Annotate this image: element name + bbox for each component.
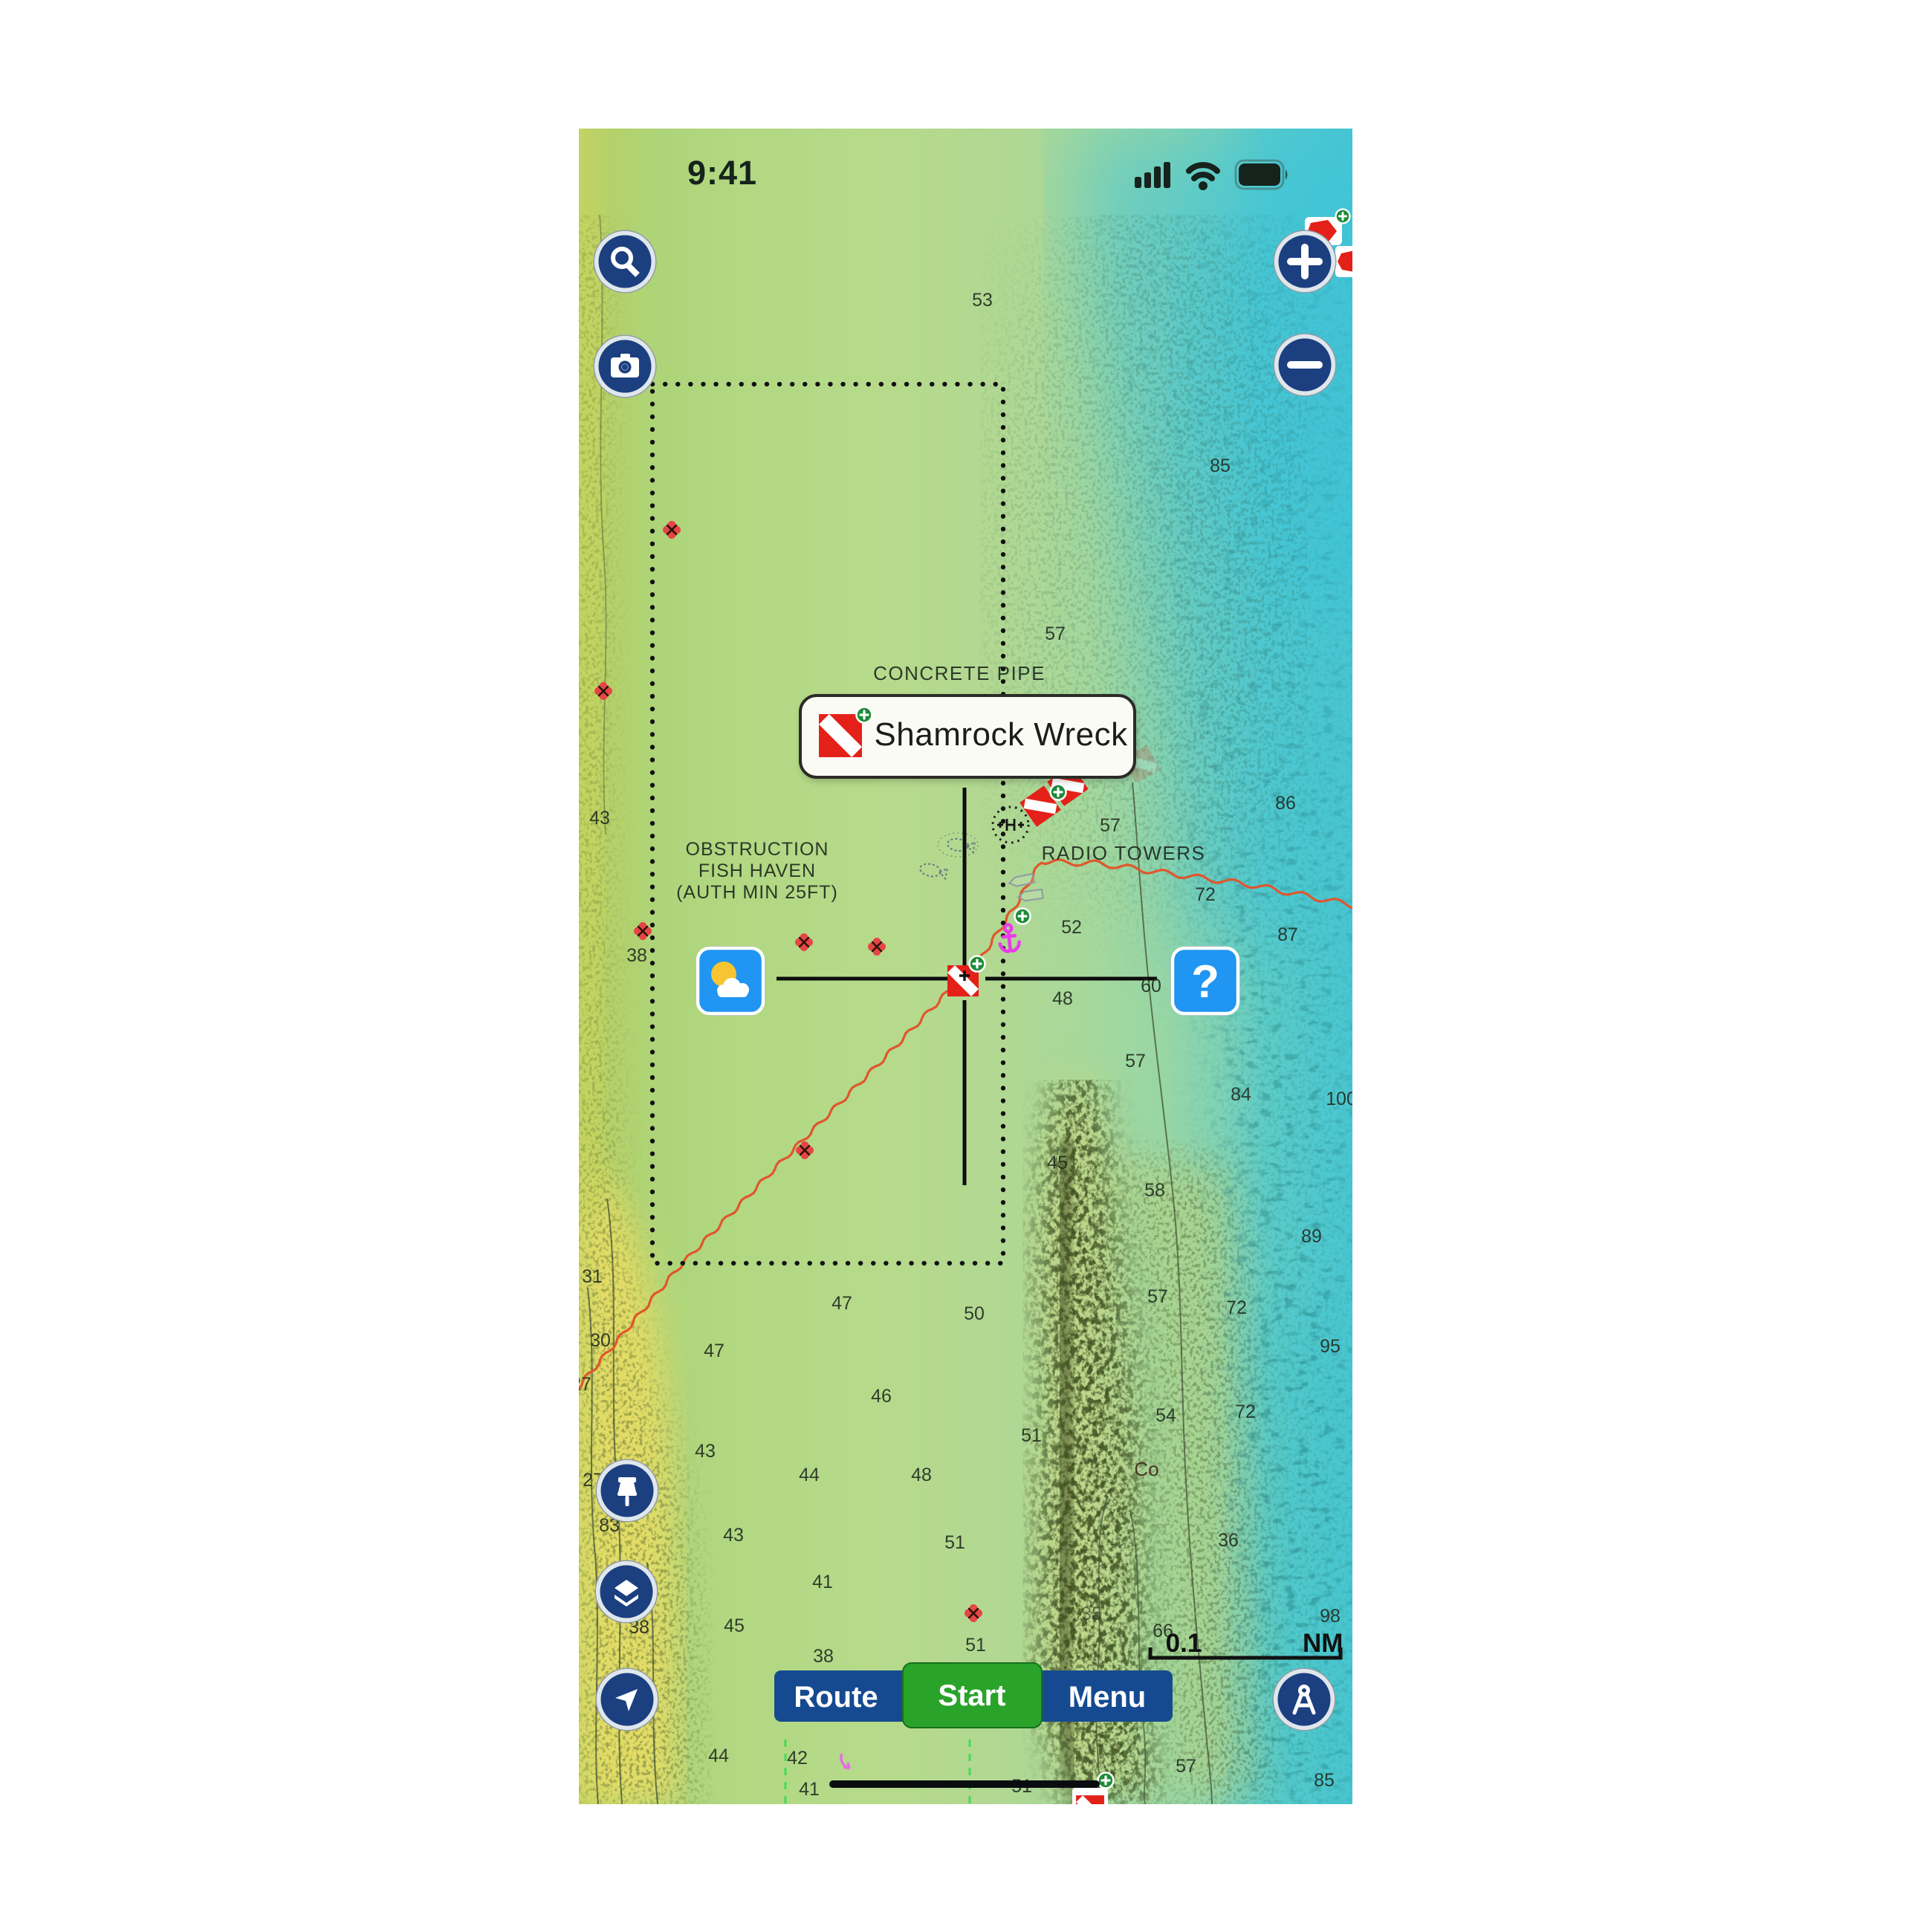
svg-text:72: 72 (1226, 1297, 1247, 1318)
svg-text:57: 57 (1147, 1286, 1168, 1307)
svg-text:36: 36 (1218, 1530, 1239, 1551)
svg-text:43: 43 (589, 808, 610, 829)
svg-text:31: 31 (582, 1266, 603, 1287)
svg-text:CONCRETE PIPE: CONCRETE PIPE (873, 662, 1046, 684)
svg-text:51: 51 (1021, 1425, 1042, 1446)
svg-text:72: 72 (1235, 1401, 1256, 1422)
svg-text:27: 27 (579, 1374, 591, 1395)
svg-text:86: 86 (1275, 793, 1296, 814)
svg-text:53: 53 (972, 290, 993, 311)
svg-text:FISH HAVEN: FISH HAVEN (698, 860, 816, 881)
svg-text:54: 54 (1155, 1405, 1176, 1426)
svg-text:42: 42 (787, 1748, 808, 1769)
svg-text:72: 72 (1195, 884, 1216, 905)
svg-text:38: 38 (813, 1646, 834, 1667)
svg-text:47: 47 (832, 1293, 852, 1314)
svg-text:Route: Route (794, 1681, 878, 1714)
svg-text:43: 43 (695, 1441, 716, 1462)
svg-text:45: 45 (1047, 1153, 1068, 1173)
svg-text:43: 43 (723, 1525, 744, 1546)
svg-text:85: 85 (1210, 456, 1231, 476)
svg-text:(AUTH MIN 25FT): (AUTH MIN 25FT) (676, 882, 838, 903)
svg-text:89: 89 (1301, 1226, 1322, 1247)
svg-text:Shamrock Wreck: Shamrock Wreck (874, 716, 1128, 753)
svg-text:51: 51 (944, 1532, 965, 1553)
svg-text:35: 35 (1081, 1604, 1102, 1624)
svg-text:57: 57 (1125, 1051, 1146, 1072)
svg-text:44: 44 (799, 1465, 820, 1485)
svg-text:Start: Start (938, 1679, 1005, 1712)
svg-text:9:41: 9:41 (687, 154, 757, 192)
svg-text:Co: Co (1134, 1458, 1158, 1480)
svg-text:60: 60 (1141, 976, 1161, 996)
svg-text:51: 51 (965, 1635, 986, 1656)
svg-text:85: 85 (1314, 1770, 1335, 1791)
svg-text:0.1: 0.1 (1166, 1629, 1202, 1658)
svg-text:41: 41 (812, 1572, 833, 1592)
svg-text:45: 45 (724, 1615, 745, 1636)
svg-text:50: 50 (964, 1303, 985, 1324)
svg-text:OBSTRUCTION: OBSTRUCTION (686, 839, 829, 860)
svg-text:NM: NM (1303, 1629, 1343, 1658)
svg-text:30: 30 (590, 1330, 611, 1351)
svg-text:57: 57 (1176, 1756, 1196, 1777)
svg-text:57: 57 (1045, 623, 1066, 644)
svg-text:RADIO TOWERS: RADIO TOWERS (1042, 842, 1206, 864)
svg-text:47: 47 (704, 1341, 724, 1361)
svg-text:?: ? (1191, 956, 1219, 1008)
svg-text:48: 48 (1052, 988, 1073, 1009)
svg-text:52: 52 (1061, 917, 1082, 938)
svg-text:87: 87 (1277, 924, 1298, 945)
svg-text:84: 84 (1231, 1084, 1251, 1105)
svg-text:38: 38 (626, 945, 647, 966)
svg-text:46: 46 (871, 1386, 892, 1407)
svg-text:41: 41 (799, 1779, 820, 1800)
svg-text:44: 44 (708, 1745, 729, 1766)
svg-text:57: 57 (1100, 815, 1121, 836)
svg-text:100: 100 (1326, 1089, 1352, 1109)
svg-text:98: 98 (1320, 1606, 1341, 1627)
svg-text:48: 48 (911, 1465, 932, 1485)
svg-text:58: 58 (1144, 1180, 1165, 1201)
svg-text:Menu: Menu (1069, 1681, 1146, 1714)
svg-text:95: 95 (1320, 1336, 1341, 1357)
